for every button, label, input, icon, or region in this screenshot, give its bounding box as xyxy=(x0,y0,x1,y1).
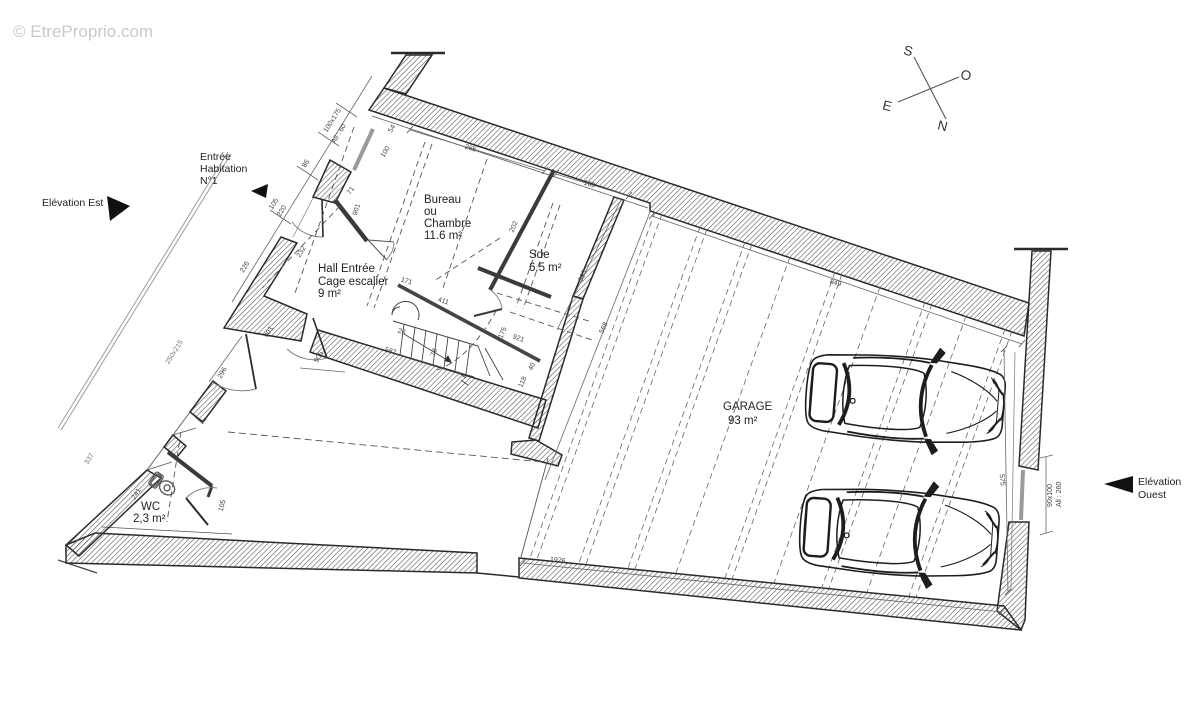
svg-text:175: 175 xyxy=(498,326,509,340)
svg-text:250x215: 250x215 xyxy=(165,339,185,366)
svg-text:S: S xyxy=(902,42,914,59)
svg-text:O: O xyxy=(959,67,973,84)
svg-text:337: 337 xyxy=(84,452,96,466)
svg-text:921: 921 xyxy=(512,333,525,344)
svg-text:100: 100 xyxy=(380,145,392,159)
svg-text:11.6 m²: 11.6 m² xyxy=(424,230,462,242)
svg-text:Hall Entrée: Hall Entrée xyxy=(318,263,375,275)
svg-text:N°1: N°1 xyxy=(200,175,218,187)
svg-text:54: 54 xyxy=(387,124,397,134)
svg-text:26: 26 xyxy=(397,328,407,337)
svg-text:Cage escalier: Cage escalier xyxy=(318,276,388,288)
svg-text:232: 232 xyxy=(296,245,308,259)
svg-text:Sde: Sde xyxy=(529,249,549,261)
svg-text:ou: ou xyxy=(424,206,437,218)
svg-text:202: 202 xyxy=(509,220,520,234)
svg-text:Chambre: Chambre xyxy=(424,218,471,230)
svg-text:71: 71 xyxy=(346,186,356,196)
svg-text:575: 575 xyxy=(998,474,1006,486)
svg-text:Entrée: Entrée xyxy=(200,151,231,163)
svg-text:226: 226 xyxy=(239,260,251,274)
svg-text:N: N xyxy=(936,117,949,134)
svg-text:78: 78 xyxy=(430,348,439,358)
svg-text:Bureau: Bureau xyxy=(424,194,461,206)
svg-text:Habitation: Habitation xyxy=(200,163,247,175)
svg-text:40: 40 xyxy=(528,362,538,372)
svg-text:86: 86 xyxy=(301,159,311,169)
svg-text:90x100: 90x100 xyxy=(1047,484,1054,507)
svg-text:All : 260: All : 260 xyxy=(1056,482,1063,507)
svg-text:Elévation Est: Elévation Est xyxy=(42,197,103,209)
svg-text:6.5 m²: 6.5 m² xyxy=(529,262,562,274)
svg-text:849: 849 xyxy=(829,278,842,288)
svg-text:GARAGE: GARAGE xyxy=(723,401,773,413)
svg-text:9 m²: 9 m² xyxy=(318,288,341,300)
svg-text:105: 105 xyxy=(218,499,228,512)
svg-text:WC: WC xyxy=(141,501,160,513)
svg-text:2,3 m²: 2,3 m² xyxy=(133,513,166,525)
svg-text:118: 118 xyxy=(518,376,529,389)
svg-text:© EtreProprio.com: © EtreProprio.com xyxy=(13,22,153,41)
svg-text:568: 568 xyxy=(599,321,610,335)
svg-text:220: 220 xyxy=(276,204,288,218)
svg-text:901: 901 xyxy=(352,203,362,216)
svg-text:Ouest: Ouest xyxy=(1138,489,1166,501)
svg-text:93 m²: 93 m² xyxy=(728,415,758,427)
svg-text:Elévation: Elévation xyxy=(1138,476,1181,488)
svg-text:E: E xyxy=(881,97,893,114)
